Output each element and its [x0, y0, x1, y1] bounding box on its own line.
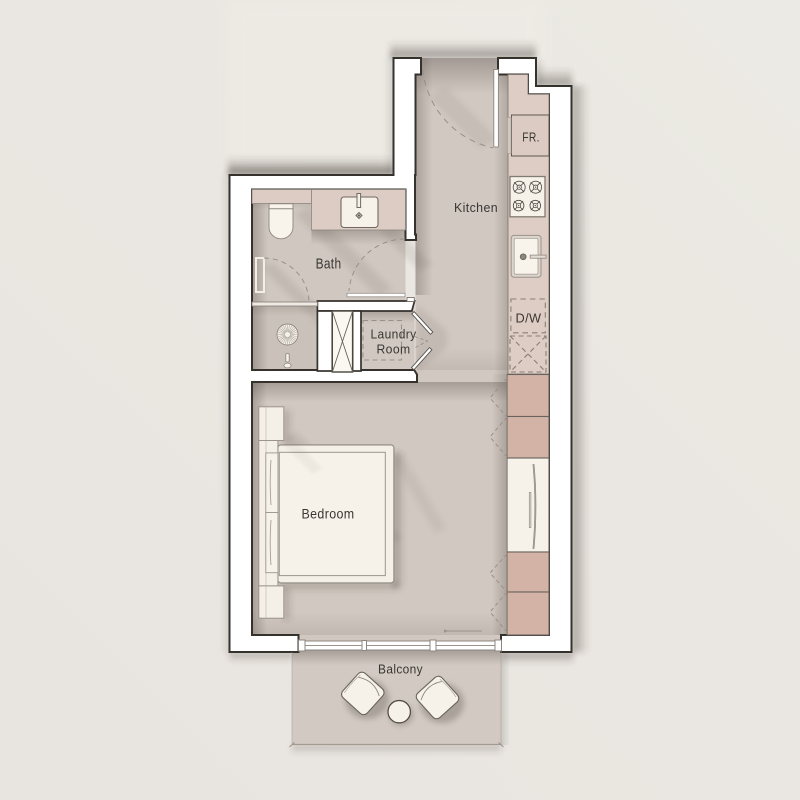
svg-text:Laundry: Laundry [371, 327, 417, 342]
svg-text:Bedroom: Bedroom [302, 505, 355, 521]
svg-text:FR.: FR. [522, 129, 540, 144]
svg-text:Kitchen: Kitchen [454, 200, 498, 215]
svg-text:Room: Room [377, 342, 411, 357]
svg-text:Balcony: Balcony [378, 661, 423, 676]
svg-text:Bath: Bath [316, 256, 342, 273]
svg-text:D/W: D/W [516, 310, 542, 325]
